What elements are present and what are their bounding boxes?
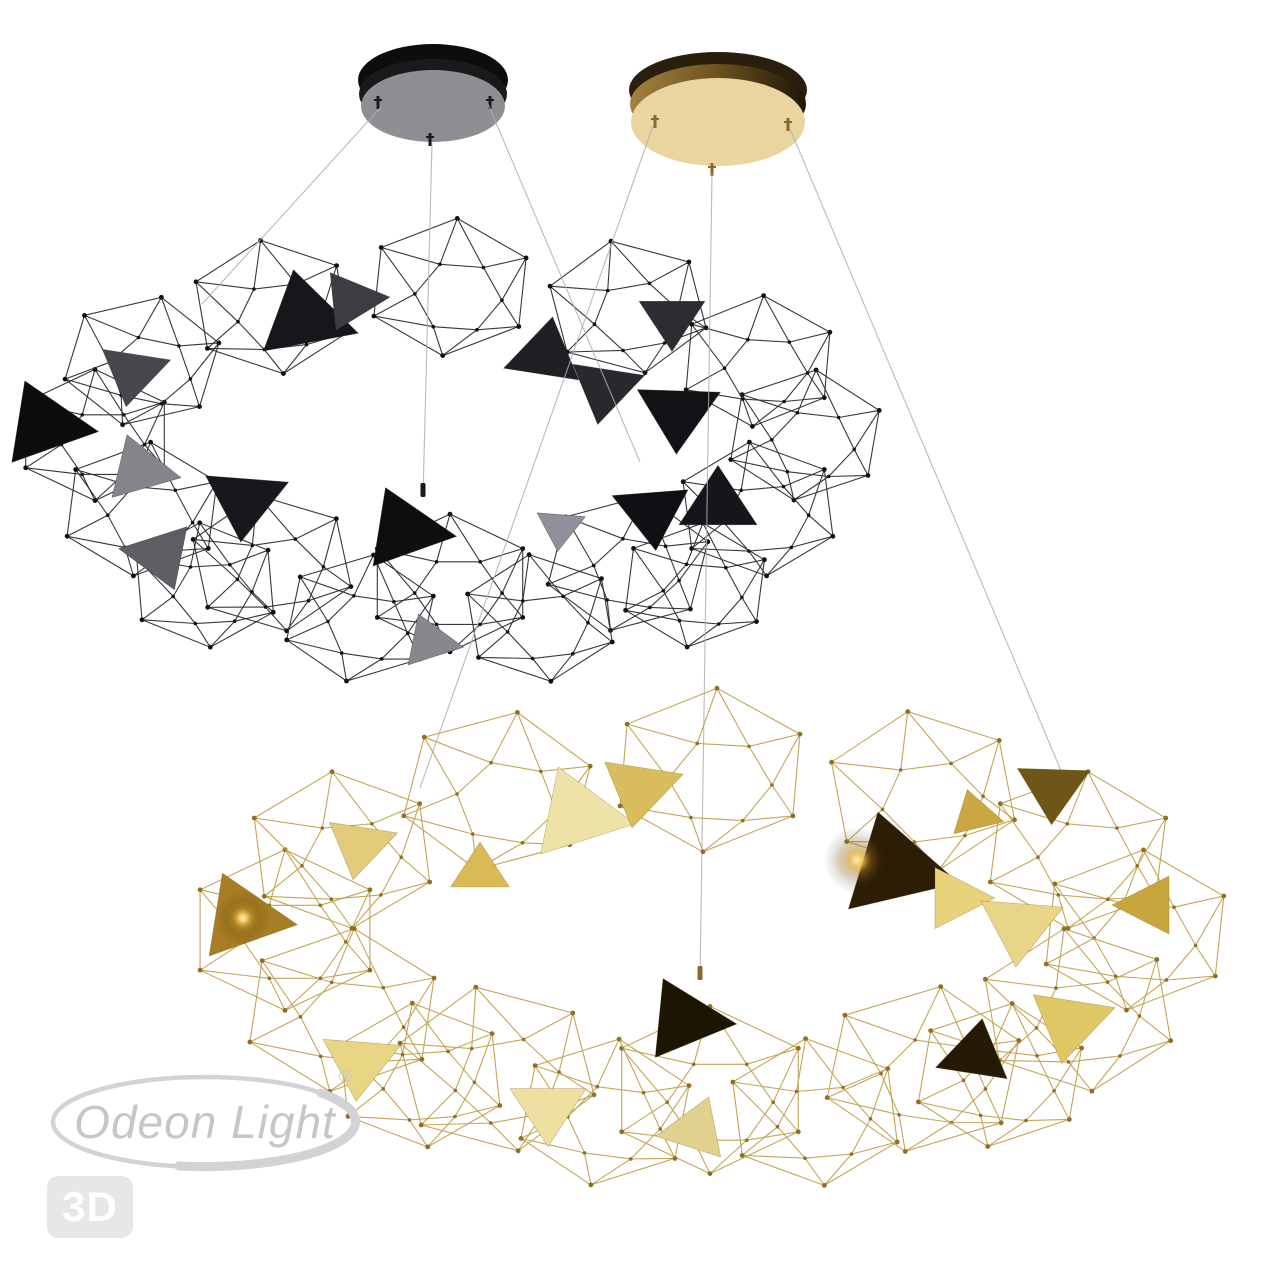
light-panel [451, 842, 510, 887]
brand-logo-text: Odeon Light [74, 1096, 337, 1148]
light-panel [329, 822, 397, 879]
suspension-wire [700, 174, 712, 980]
light-panel [981, 901, 1064, 967]
light-panel [330, 273, 390, 331]
suspension-wires [202, 104, 1062, 980]
light-panel [935, 868, 995, 929]
wireframe-cell [374, 218, 526, 355]
black-chandelier-layer [12, 216, 882, 684]
light-panel [373, 488, 457, 566]
light-panel [612, 490, 688, 551]
product-render: Odeon Light ® 3D [0, 0, 1280, 1280]
brand-watermark: Odeon Light ® [35, 1056, 375, 1178]
registered-trademark-icon: ® [339, 1067, 352, 1086]
wire-connector [421, 483, 426, 497]
suspension-wire [488, 104, 640, 462]
wire-connector [698, 966, 703, 980]
canopy-underside [361, 70, 505, 142]
light-panel [573, 364, 645, 424]
suspension-wire [790, 129, 1062, 773]
black-chandelier [12, 216, 882, 684]
led-glow [216, 891, 271, 946]
suspension-wire [423, 143, 432, 497]
wireframe-cell [731, 370, 879, 500]
light-panel [639, 301, 705, 351]
canopy-underside [631, 78, 805, 166]
light-panel [12, 381, 99, 463]
ceiling-canopy-black [358, 44, 508, 146]
light-panel [537, 513, 585, 552]
light-panel [1017, 768, 1090, 825]
light-panel [206, 476, 289, 542]
light-panel [655, 979, 737, 1058]
wireframe-cell [468, 555, 613, 682]
led-glow [824, 827, 890, 893]
light-panel [954, 790, 1004, 834]
light-panel [936, 1019, 1008, 1079]
light-panel [679, 465, 757, 524]
light-panel [1033, 995, 1115, 1064]
3d-badge: 3D [47, 1176, 133, 1238]
light-panel [656, 1097, 721, 1157]
ceiling-canopy-gold [629, 52, 807, 176]
3d-badge-text: 3D [62, 1186, 118, 1228]
ceiling-canopies [358, 44, 807, 176]
light-panel [119, 527, 187, 590]
wireframe-cell [626, 523, 765, 647]
